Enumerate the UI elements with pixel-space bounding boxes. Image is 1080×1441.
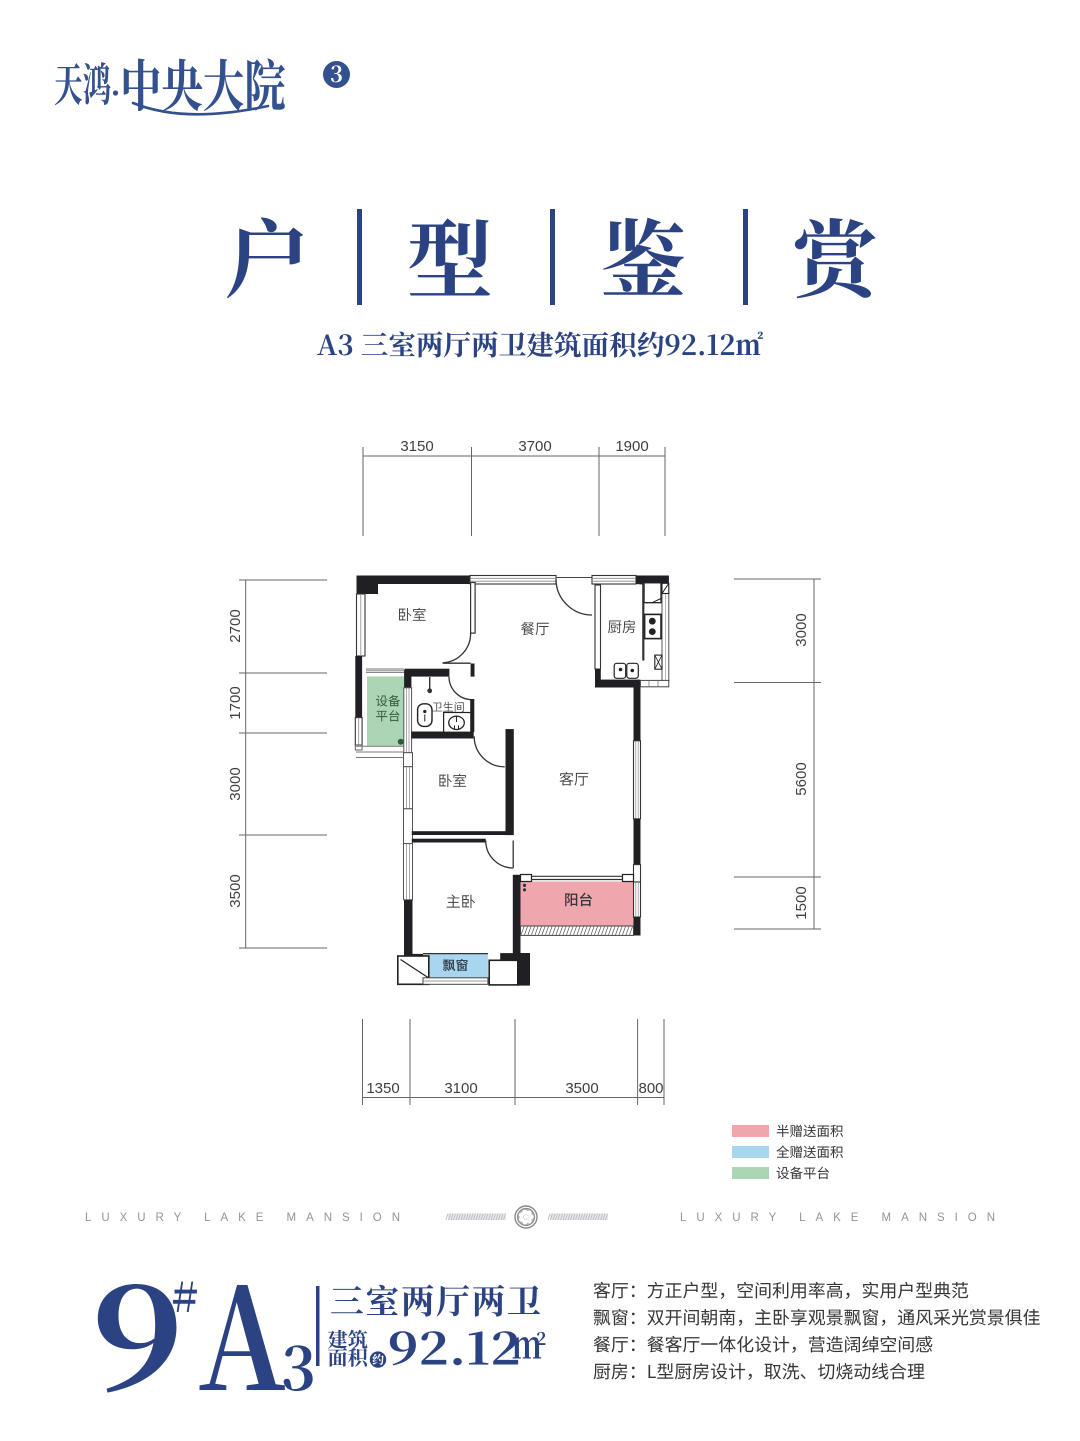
svg-text:1500: 1500 (793, 886, 810, 919)
svg-text:3100: 3100 (444, 1080, 477, 1097)
svg-text:1900: 1900 (615, 438, 648, 455)
svg-text:3500: 3500 (565, 1080, 598, 1097)
svg-text:800: 800 (638, 1080, 663, 1097)
svg-text:5600: 5600 (793, 762, 810, 795)
svg-text:3150: 3150 (400, 438, 433, 455)
svg-text:3000: 3000 (227, 767, 244, 800)
svg-text:3000: 3000 (793, 613, 810, 646)
svg-text:1350: 1350 (366, 1080, 399, 1097)
svg-text:3500: 3500 (227, 874, 244, 907)
svg-text:2700: 2700 (227, 609, 244, 642)
svg-text:3700: 3700 (518, 438, 551, 455)
svg-text:1700: 1700 (227, 686, 244, 719)
